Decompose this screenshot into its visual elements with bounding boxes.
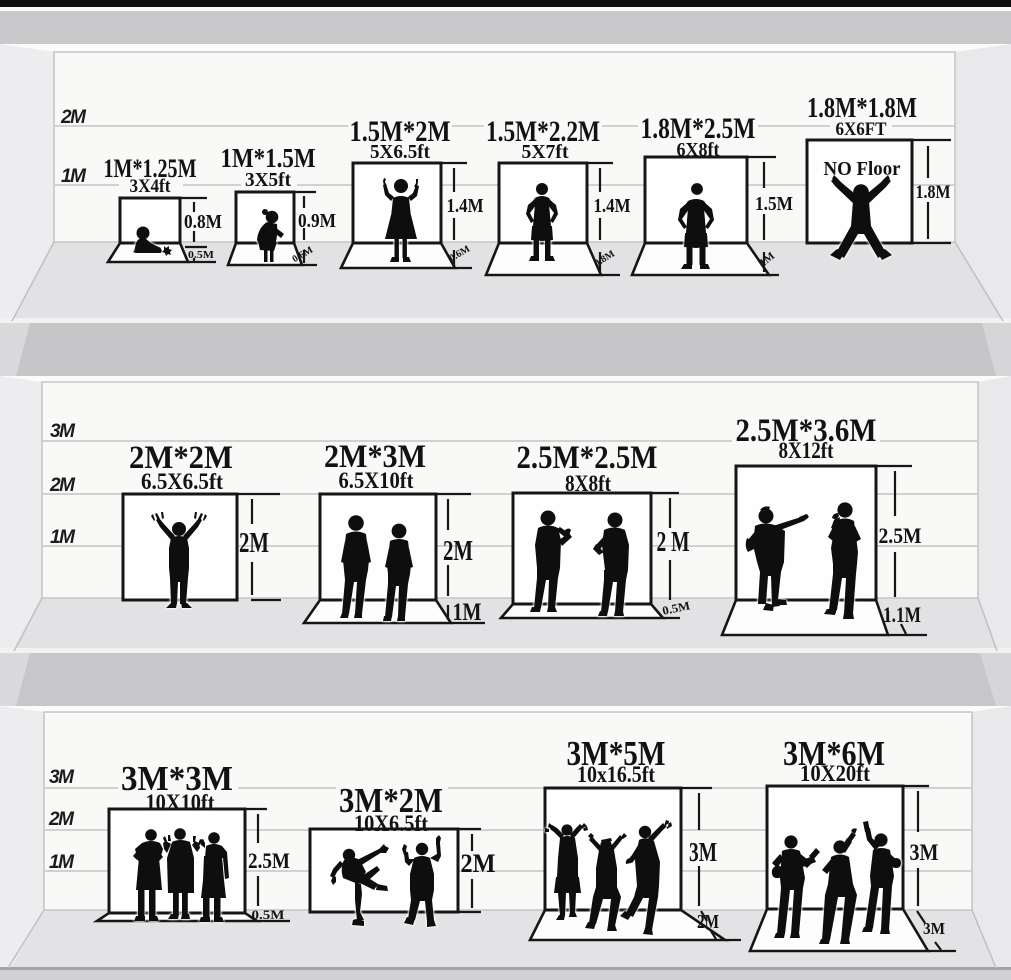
svg-text:10x16.5ft: 10x16.5ft <box>577 762 655 787</box>
svg-text:0.5M: 0.5M <box>252 907 285 922</box>
svg-text:1M: 1M <box>61 166 87 187</box>
svg-text:3M: 3M <box>689 837 717 867</box>
svg-text:2M: 2M <box>48 809 75 830</box>
svg-text:3M: 3M <box>923 919 945 938</box>
svg-text:3X5ft: 3X5ft <box>245 169 291 191</box>
svg-text:1.8M: 1.8M <box>916 182 951 203</box>
svg-text:6X8ft: 6X8ft <box>677 139 720 161</box>
svg-text:2.5M: 2.5M <box>248 848 290 873</box>
svg-text:3M: 3M <box>910 840 939 865</box>
svg-text:2.5M: 2.5M <box>879 523 922 548</box>
svg-text:2M: 2M <box>461 849 496 878</box>
svg-text:10X6.5ft: 10X6.5ft <box>354 811 428 836</box>
svg-text:5X7ft: 5X7ft <box>522 141 569 163</box>
svg-text:10X10ft: 10X10ft <box>146 790 215 815</box>
svg-text:1.4M: 1.4M <box>594 195 631 217</box>
svg-text:2M: 2M <box>443 536 473 567</box>
svg-text:6.5X6.5ft: 6.5X6.5ft <box>141 469 223 494</box>
svg-text:1.5M: 1.5M <box>755 193 793 215</box>
svg-text:10X20ft: 10X20ft <box>800 761 870 786</box>
svg-text:2 M: 2 M <box>657 527 690 558</box>
svg-text:2M: 2M <box>60 107 87 128</box>
svg-text:0.5M: 0.5M <box>188 249 215 261</box>
svg-text:1M: 1M <box>50 527 76 548</box>
svg-text:1M: 1M <box>453 599 482 626</box>
svg-text:2M: 2M <box>49 475 76 496</box>
svg-text:0.9M: 0.9M <box>298 210 336 232</box>
svg-text:5X6.5ft: 5X6.5ft <box>370 141 430 163</box>
svg-text:2M: 2M <box>239 528 269 559</box>
svg-text:3M: 3M <box>50 421 76 442</box>
svg-text:1M: 1M <box>49 852 75 873</box>
svg-text:1.1M: 1.1M <box>883 602 921 627</box>
svg-text:8X12ft: 8X12ft <box>779 438 834 463</box>
svg-text:6.5X10ft: 6.5X10ft <box>339 468 414 493</box>
svg-text:1.4M: 1.4M <box>447 195 484 217</box>
svg-text:0.8M: 0.8M <box>184 211 222 233</box>
svg-text:3X4ft: 3X4ft <box>130 176 172 197</box>
svg-text:6X6FT: 6X6FT <box>836 119 887 140</box>
svg-text:8X8ft: 8X8ft <box>565 471 611 496</box>
svg-text:3M: 3M <box>49 767 75 788</box>
svg-text:2M: 2M <box>697 911 719 933</box>
